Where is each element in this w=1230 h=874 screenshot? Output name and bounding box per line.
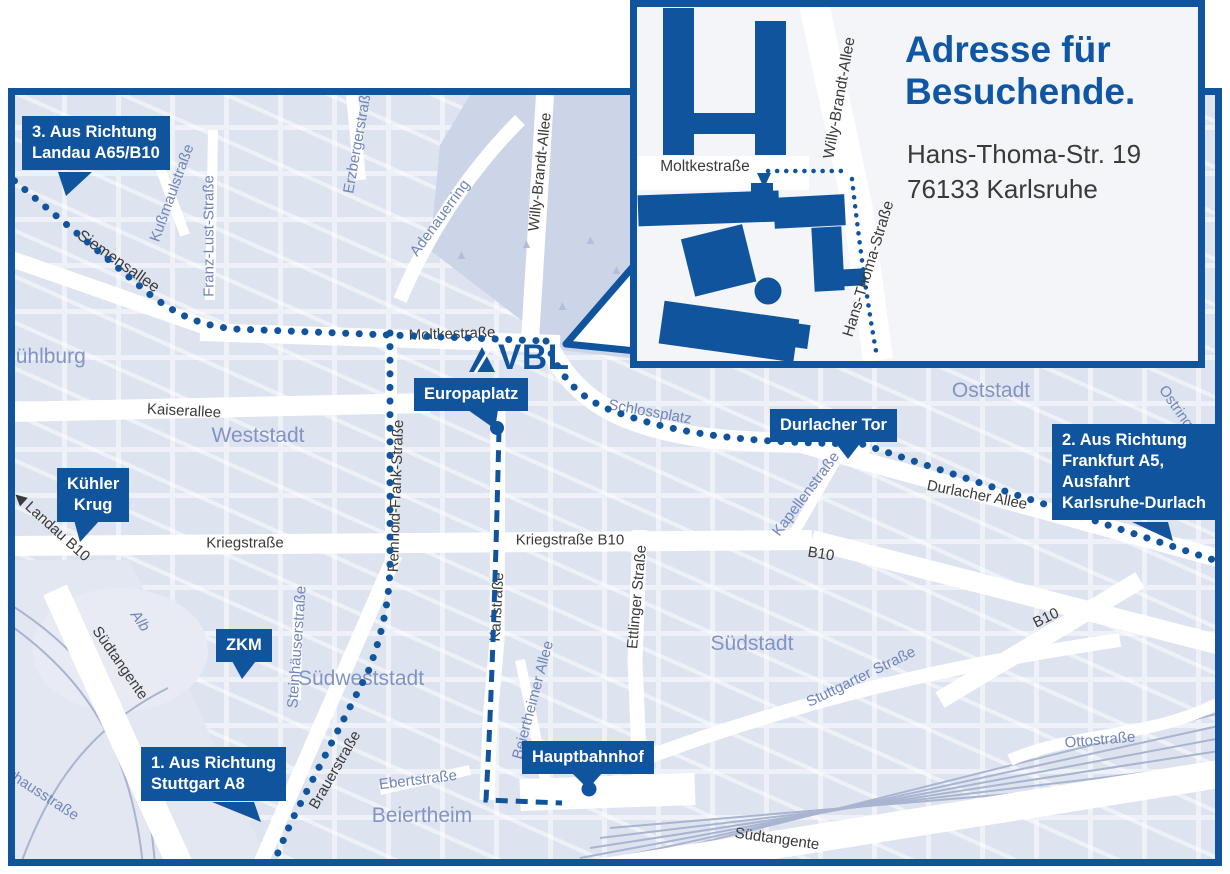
badge-line: 2. Aus Richtung xyxy=(1062,430,1206,451)
address-line: 76133 Karlsruhe xyxy=(907,172,1141,207)
hauptbahnhof-stop-dot xyxy=(582,782,597,797)
badge-line: Krug xyxy=(67,495,119,516)
route-from-stuttgart xyxy=(268,333,390,866)
badge-zkm: ZKM xyxy=(216,629,272,662)
inset-title-line: Besuchende. xyxy=(905,71,1135,113)
badge-durlacher-tor: Durlacher Tor xyxy=(770,409,897,442)
vbl-logo-text: VBL xyxy=(498,343,570,373)
europaplatz-stop-dot xyxy=(490,421,504,435)
badge-europaplatz: Europaplatz xyxy=(414,378,528,411)
inset-vbl-buildings xyxy=(638,183,866,361)
karlsruhe-directions-map: ▲ ▲ ▲ ▲ ▲ Siemensallee Kußmaulstraße Fra… xyxy=(0,0,1230,874)
visitor-address: Hans-Thoma-Str. 19 76133 Karlsruhe xyxy=(907,137,1141,207)
badge-line: Kühler xyxy=(67,474,119,495)
inset-title-line: Adresse für xyxy=(905,29,1135,71)
inset-street-label-moltkestrasse: Moltkestraße xyxy=(660,158,750,176)
badge-line: ZKM xyxy=(226,635,262,656)
inset-detail-panel: Moltkestraße Willy-Brandt-Allee Hans-Tho… xyxy=(630,0,1205,368)
inset-h-building xyxy=(663,8,786,155)
badge-line: Europaplatz xyxy=(424,384,518,405)
vbl-logo: VBL xyxy=(468,343,570,373)
badge-line: Hauptbahnhof xyxy=(532,747,644,768)
badge-line: 3. Aus Richtung xyxy=(32,122,160,143)
badge-kuehler-krug: Kühler Krug xyxy=(57,468,129,522)
badge-line: Karlsruhe-Durlach xyxy=(1062,493,1206,514)
route-from-landau xyxy=(8,172,546,341)
inset-title: Adresse für Besuchende. xyxy=(905,29,1135,113)
badge-line: 1. Aus Richtung xyxy=(151,753,276,774)
badge-route-1-stuttgart: 1. Aus Richtung Stuttgart A8 xyxy=(141,747,286,801)
badge-line: Frankfurt A5, xyxy=(1062,451,1206,472)
badge-line: Landau A65/B10 xyxy=(32,143,160,164)
badge-line: Durlacher Tor xyxy=(780,415,887,436)
vbl-triangle-icon xyxy=(468,346,498,373)
badge-route-2-frankfurt: 2. Aus Richtung Frankfurt A5, Ausfahrt K… xyxy=(1052,424,1216,520)
badge-hauptbahnhof: Hauptbahnhof xyxy=(522,741,654,774)
badge-line: Stuttgart A8 xyxy=(151,774,276,795)
badge-line: Ausfahrt xyxy=(1062,472,1206,493)
badge-route-3-landau: 3. Aus Richtung Landau A65/B10 xyxy=(22,116,170,170)
address-line: Hans-Thoma-Str. 19 xyxy=(907,137,1141,172)
